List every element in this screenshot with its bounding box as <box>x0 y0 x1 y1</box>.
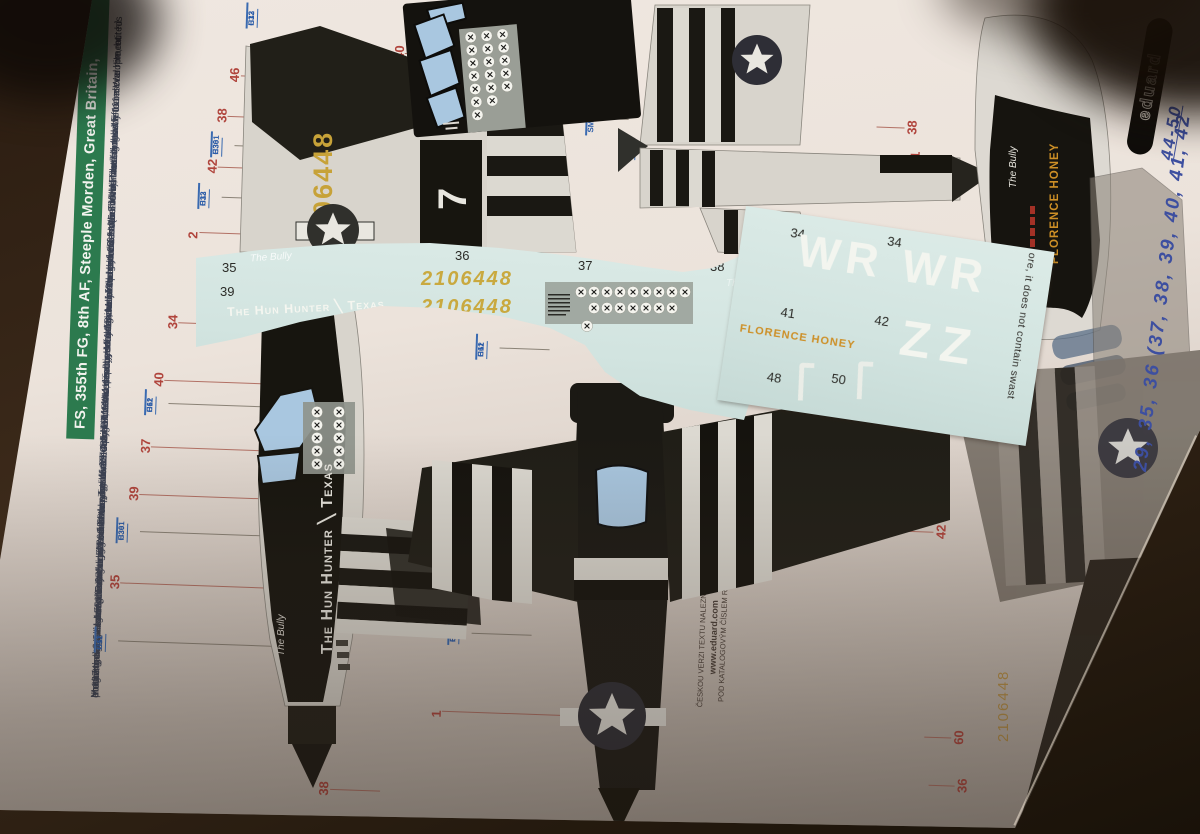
decal-script: The Bully <box>250 251 292 265</box>
decal-number-42: 42 <box>873 312 890 329</box>
decal-florence-honey: FLORENCE HONEY <box>739 322 856 351</box>
instruction-page: FS, 355th FG, 8th AF, Steeple Morden, Gr… <box>0 0 1200 834</box>
decal-bracket-mark <box>798 363 815 402</box>
decal-number-41: 41 <box>780 304 797 321</box>
nose-art-text: The Hun Hunter ╲ Texas <box>316 463 337 654</box>
decal-number-35: 35 <box>222 260 236 275</box>
florence-honey-text: FLORENCE HONEY <box>1049 143 1061 264</box>
underside-serial: 2106448 <box>995 670 1012 742</box>
decal-zz-codes: ZZ <box>896 309 985 378</box>
fuselage-code-letter: 7 <box>431 188 475 210</box>
pilot-script-text: The Bully <box>1008 145 1019 188</box>
pilot-script-text: The Bully <box>276 613 287 656</box>
decal-serial-1: 2106448 <box>421 268 513 291</box>
top-view-dark <box>408 383 950 832</box>
cockpit-detail-view <box>402 0 641 138</box>
spinner <box>292 744 332 788</box>
decal-number-50: 50 <box>830 371 847 388</box>
decal-bracket-mark <box>857 361 874 400</box>
decal-number-39: 39 <box>220 284 234 299</box>
decal-number-37: 37 <box>578 258 592 273</box>
decal-kill-markings <box>545 280 697 338</box>
photo-of-decal-instruction-sheet: FS, 355th FG, 8th AF, Steeple Morden, Gr… <box>0 0 1200 834</box>
decal-number-48: 48 <box>766 369 783 386</box>
decal-number-36: 36 <box>455 248 469 263</box>
